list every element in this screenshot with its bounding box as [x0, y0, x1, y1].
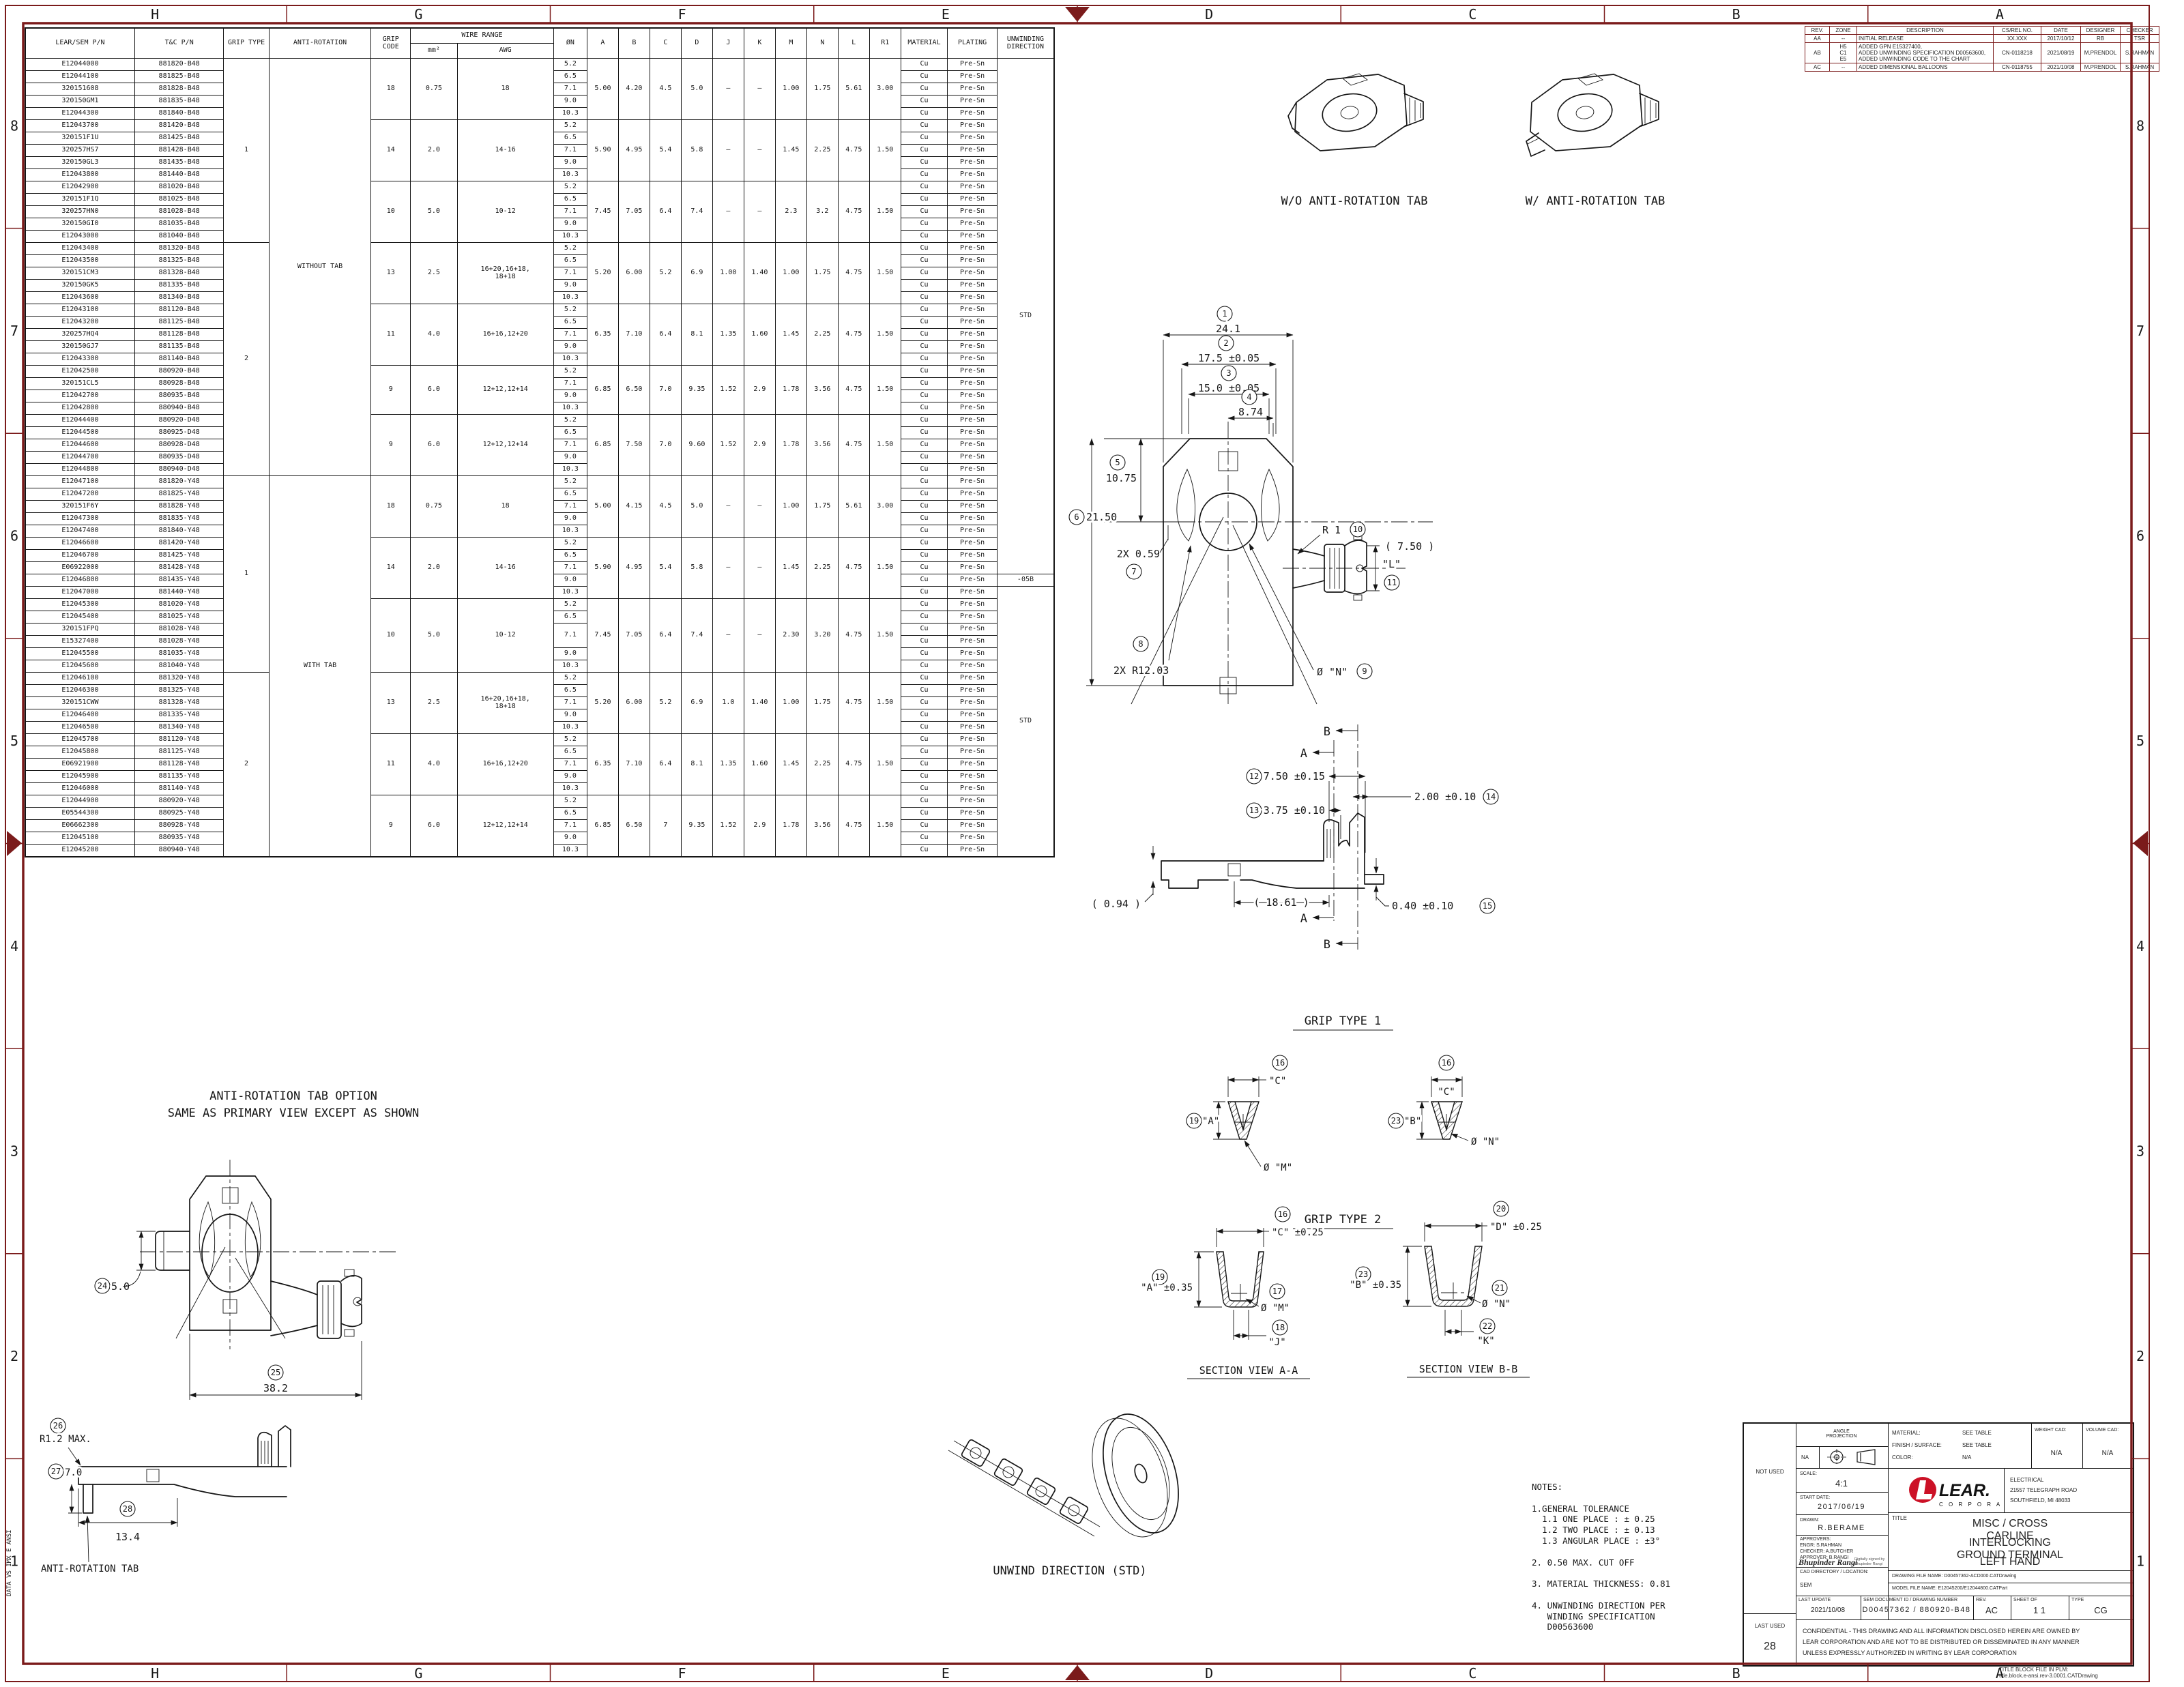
table-cell: 881320-Y48 [134, 673, 223, 685]
table-cell: 4.75 [838, 181, 869, 243]
table-cell: Pre-Sn [948, 599, 998, 611]
rev-cell: CN-0118218 [1994, 43, 2041, 63]
grip2-dim-a: "A" ±0.35 [1141, 1282, 1193, 1293]
table-cell: 881040-B48 [134, 231, 223, 243]
rev-cell: -- [1830, 35, 1857, 43]
table-cell: E12046000 [25, 783, 134, 795]
table-cell: Pre-Sn [948, 611, 998, 624]
table-cell: 881325-Y48 [134, 685, 223, 697]
table-cell: 7.1 [553, 83, 587, 96]
table-cell: 6.5 [553, 808, 587, 820]
table-cell: Pre-Sn [948, 452, 998, 464]
table-cell: E12046700 [25, 550, 134, 562]
dim-8-74: 8.74 [1238, 406, 1263, 418]
table-cell: Cu [901, 660, 947, 673]
table-cell: E12042500 [25, 366, 134, 378]
table-cell: 320150GJ7 [25, 341, 134, 353]
table-cell: Pre-Sn [948, 795, 998, 808]
table-cell: 320150GI0 [25, 218, 134, 231]
table-cell: Cu [901, 562, 947, 574]
view-w-anti-rotation-tab: W/ ANTI-ROTATION TAB [1526, 74, 1665, 208]
table-cell: 2.30 [775, 599, 806, 673]
table-cell: Pre-Sn [948, 108, 998, 120]
table-cell: 4.75 [838, 599, 869, 673]
table-cell: 5.0 [681, 476, 712, 538]
table-cell: E06922000 [25, 562, 134, 574]
table-cell: 320257HN0 [25, 206, 134, 218]
table-cell: Pre-Sn [948, 464, 998, 476]
dim-l-value: ( 7.50 ) [1385, 540, 1434, 553]
col-header-awg: AWG [457, 44, 553, 59]
rev-col-header: DESCRIPTION [1857, 27, 1994, 35]
table-cell: 1.50 [869, 120, 901, 181]
table-cell: 6.9 [681, 243, 712, 304]
table-cell: Cu [901, 366, 947, 378]
table-cell: Cu [901, 771, 947, 783]
dim-l-label: "L" [1382, 558, 1401, 570]
anti-option-title1: ANTI-ROTATION TAB OPTION [209, 1089, 377, 1103]
grip-type-2-views: GRIP TYPE 2 16 "C" ±0.25 19 "A" ±0.35 17… [1141, 1201, 1542, 1379]
table-cell: 10.3 [553, 402, 587, 415]
table-cell: 1.75 [806, 476, 838, 538]
table-cell: 5.4 [650, 120, 681, 181]
table-cell: 9 [371, 366, 411, 415]
table-cell: E12045600 [25, 660, 134, 673]
table-cell: Cu [901, 157, 947, 169]
table-cell: Cu [901, 329, 947, 341]
table-cell: E12045700 [25, 734, 134, 746]
table-cell: E06662300 [25, 820, 134, 832]
table-cell: 881420-Y48 [134, 538, 223, 550]
table-cell: 9 [371, 415, 411, 476]
table-cell: 881120-B48 [134, 304, 223, 317]
table-cell: 7.1 [553, 697, 587, 709]
table-cell: 1.50 [869, 415, 901, 476]
grip1-dim-c2: "C" [1438, 1087, 1455, 1098]
grip1-dim-a: "A" [1202, 1116, 1219, 1127]
ref-0-94: ( 0.94 ) [1092, 898, 1141, 910]
table-cell: 5.2 [553, 181, 587, 194]
table-cell: Pre-Sn [948, 624, 998, 636]
table-cell: 9.0 [553, 390, 587, 402]
approvers-label: APPROVERS: [1800, 1537, 1831, 1542]
col-header-J: J [712, 28, 744, 59]
table-cell: Pre-Sn [948, 366, 998, 378]
table-cell: 12+12,12+14 [457, 366, 553, 415]
zone-label: E [942, 1665, 950, 1682]
table-cell: Cu [901, 820, 947, 832]
table-cell: 7.1 [553, 624, 587, 648]
table-cell: E12047400 [25, 525, 134, 538]
table-cell: 10-12 [457, 181, 553, 243]
table-cell: 881440-Y48 [134, 587, 223, 599]
table-cell: 881325-B48 [134, 255, 223, 267]
table-cell: Pre-Sn [948, 820, 998, 832]
balloon-16b: 16 [1442, 1058, 1451, 1068]
table-cell: Cu [901, 378, 947, 390]
table-cell: Cu [901, 832, 947, 845]
table-cell: Pre-Sn [948, 722, 998, 734]
table-cell: 9.0 [553, 280, 587, 292]
zone-label: H [151, 6, 159, 23]
table-cell: 5.0 [411, 599, 457, 673]
rev-cell: INITIAL RELEASE [1857, 35, 1994, 43]
table-cell: 881820-Y48 [134, 476, 223, 488]
table-cell: Cu [901, 734, 947, 746]
table-cell: 1.52 [712, 415, 744, 476]
table-cell: E12043400 [25, 243, 134, 255]
zone-label: 3 [10, 1143, 18, 1159]
table-cell: 7.1 [553, 759, 587, 771]
logo-sub: C O R P O R A T I O N [1939, 1501, 2000, 1508]
table-cell: 6.4 [650, 734, 681, 795]
table-cell: E12042800 [25, 402, 134, 415]
table-cell: 6.5 [553, 746, 587, 759]
third-angle-projection-icon [1824, 1448, 1884, 1466]
table-cell: Cu [901, 181, 947, 194]
table-cell: Pre-Sn [948, 120, 998, 132]
table-cell: Pre-Sn [948, 562, 998, 574]
table-cell: 1.0 [712, 673, 744, 734]
table-cell: Cu [901, 845, 947, 857]
grip1-dim-c: "C" [1269, 1076, 1286, 1087]
table-cell: 881035-Y48 [134, 648, 223, 660]
table-cell: Cu [901, 280, 947, 292]
balloon-23b: 23 [1358, 1270, 1368, 1279]
dim-21-50: 21.50 [1086, 511, 1117, 523]
table-cell: Pre-Sn [948, 697, 998, 709]
table-cell: 881820-B48 [134, 59, 223, 71]
table-cell: Cu [901, 194, 947, 206]
table-cell: E12046600 [25, 538, 134, 550]
rev-cell: -- [1830, 63, 1857, 72]
table-cell: Cu [901, 169, 947, 181]
plm-note: TITLE BLOCK FILE IN PLM: title.block.e-a… [1999, 1667, 2098, 1679]
rev-cell: AC [1805, 63, 1830, 72]
table-cell: 18 [457, 59, 553, 120]
ref-18-61: ( 18.61 ) [1253, 896, 1309, 909]
table-cell: 1.50 [869, 795, 901, 857]
table-cell: 1.35 [712, 304, 744, 366]
balloon-25: 25 [271, 1368, 280, 1377]
table-cell: Pre-Sn [948, 390, 998, 402]
table-cell: Pre-Sn [948, 243, 998, 255]
lear-logo: LEAR. C O R P O R A T I O N [1908, 1475, 2000, 1510]
type-label: TYPE [2071, 1598, 2084, 1602]
table-cell: – [712, 599, 744, 673]
table-cell: E12044400 [25, 415, 134, 427]
table-cell: Pre-Sn [948, 96, 998, 108]
grip2-dim-m: Ø "M" [1261, 1303, 1290, 1314]
revision-table: REV.ZONEDESCRIPTIONCS/REL NO.DATEDESIGNE… [1805, 26, 2159, 72]
table-cell: Cu [901, 795, 947, 808]
table-cell: 1.00 [775, 476, 806, 538]
table-cell: – [712, 476, 744, 538]
table-cell: Pre-Sn [948, 550, 998, 562]
table-cell: 7.1 [553, 329, 587, 341]
table-cell: 320151FPQ [25, 624, 134, 636]
table-cell: E12043700 [25, 120, 134, 132]
col-header-B: B [618, 28, 650, 59]
angle-na: NA [1801, 1454, 1809, 1461]
table-cell: – [744, 476, 775, 538]
table-cell: 5.2 [553, 538, 587, 550]
doc-number-label: SEM DOCUMENT ID / DRAWING NUMBER [1863, 1598, 1957, 1602]
table-cell: 12+12,12+14 [457, 795, 553, 857]
table-cell: 881340-Y48 [134, 722, 223, 734]
zone-label: G [414, 6, 422, 23]
table-cell: 5.2 [553, 366, 587, 378]
dim-dia-n: Ø "N" [1317, 666, 1348, 678]
dim-13-4: 13.4 [115, 1531, 140, 1543]
zone-label: E [942, 6, 950, 23]
table-cell: 6.5 [553, 685, 587, 697]
table-cell: 881435-Y48 [134, 574, 223, 587]
table-cell: E12046300 [25, 685, 134, 697]
table-cell: 5.2 [553, 415, 587, 427]
title-line3: LEFT HAND [1980, 1556, 2041, 1568]
table-cell: 7.50 [618, 415, 650, 476]
table-cell: Cu [901, 341, 947, 353]
col-header-pn: LEAR/SEM P/N [25, 28, 134, 59]
table-cell: 5.2 [553, 599, 587, 611]
table-cell: 1.00 [775, 673, 806, 734]
table-cell: 3.56 [806, 415, 838, 476]
table-cell: Pre-Sn [948, 476, 998, 488]
zone-label: D [1205, 1665, 1213, 1682]
table-cell: Pre-Sn [948, 746, 998, 759]
table-cell: 6.5 [553, 611, 587, 624]
table-cell: 881128-B48 [134, 329, 223, 341]
approver-engr: ENGR: S.RAHMAN [1800, 1543, 1841, 1548]
table-cell: 1.45 [775, 304, 806, 366]
zone-label: C [1468, 1665, 1476, 1682]
table-cell: 1.75 [806, 243, 838, 304]
grip2-dim-n: Ø "N" [1482, 1299, 1511, 1310]
rev-cell: AA [1805, 35, 1830, 43]
parts-table-body: E12044000881820-B481WITHOUT TAB180.75185… [25, 59, 1054, 857]
table-row: E12046600881420-Y48142.014-165.25.904.95… [25, 538, 1054, 550]
table-cell: 881435-B48 [134, 157, 223, 169]
zone-label: H [151, 1665, 159, 1682]
table-cell: Pre-Sn [948, 808, 998, 820]
signature-note: Digitally signed by Bhupinder Rangi [1854, 1557, 1884, 1566]
table-cell: 10.3 [553, 231, 587, 243]
grip2-dim-k: "K" [1477, 1336, 1494, 1347]
table-cell: E06921900 [25, 759, 134, 771]
table-cell: 11 [371, 734, 411, 795]
not-used-label: NOT USED [1756, 1469, 1783, 1475]
dim-5-0: 5.0 [111, 1280, 130, 1293]
table-cell: WITH TAB [269, 476, 371, 857]
table-cell: WITHOUT TAB [269, 59, 371, 476]
zone-label: 4 [10, 938, 18, 954]
balloon-12: 12 [1249, 772, 1259, 781]
table-cell: 4.75 [838, 673, 869, 734]
table-cell: 10.3 [553, 783, 587, 795]
table-cell: Cu [901, 476, 947, 488]
table-cell: Cu [901, 231, 947, 243]
parts-table: LEAR/SEM P/N T&C P/N GRIP TYPE ANTI-ROTA… [25, 27, 1055, 857]
table-cell: 6.85 [587, 795, 618, 857]
dim-overall-width: 24.1 [1216, 323, 1240, 335]
section-view-aa: SECTION VIEW A-A [1199, 1364, 1298, 1377]
table-cell: Pre-Sn [948, 218, 998, 231]
table-cell: 4.95 [618, 120, 650, 181]
table-cell: Cu [901, 636, 947, 648]
grip-type-2-title: GRIP TYPE 2 [1305, 1213, 1382, 1227]
col-header-A: A [587, 28, 618, 59]
table-cell: 3.20 [806, 599, 838, 673]
table-cell: 881828-B48 [134, 83, 223, 96]
dim-0-40: 0.40 ±0.10 [1392, 900, 1453, 912]
table-cell: 1.35 [712, 734, 744, 795]
rev-cell: RB [2081, 35, 2121, 43]
start-date-value: 2017/06/19 [1818, 1503, 1865, 1511]
table-cell: E12044300 [25, 108, 134, 120]
table-row: E12042900881020-B48105.010-125.27.457.05… [25, 181, 1054, 194]
table-cell: 881025-Y48 [134, 611, 223, 624]
table-cell: 881428-B48 [134, 145, 223, 157]
table-cell: 881420-B48 [134, 120, 223, 132]
table-cell: 320151608 [25, 83, 134, 96]
table-cell: 5.00 [587, 476, 618, 538]
table-cell: Pre-Sn [948, 169, 998, 181]
table-cell: Pre-Sn [948, 267, 998, 280]
table-cell: Pre-Sn [948, 734, 998, 746]
table-cell: 10 [371, 599, 411, 673]
col-header-grip: GRIP TYPE [224, 28, 269, 59]
table-cell: Pre-Sn [948, 329, 998, 341]
table-cell: E05544300 [25, 808, 134, 820]
table-cell: 881825-Y48 [134, 488, 223, 501]
table-cell: 7.1 [553, 501, 587, 513]
table-cell: Cu [901, 501, 947, 513]
table-cell: 4.75 [838, 366, 869, 415]
zone-label: 6 [2136, 528, 2144, 544]
balloon-14: 14 [1486, 792, 1496, 802]
dim-r1-2: R1.2 MAX. [40, 1434, 91, 1445]
table-cell: 2.9 [744, 795, 775, 857]
view-wo-anti-rotation-tab: W/O ANTI-ROTATION TAB [1281, 74, 1428, 208]
zone-label: 3 [2136, 1143, 2144, 1159]
table-cell: 5.2 [553, 59, 587, 71]
table-cell: 881020-Y48 [134, 599, 223, 611]
table-cell: 5.0 [411, 181, 457, 243]
table-cell: Cu [901, 697, 947, 709]
zone-label: A [1996, 6, 2004, 23]
sheet-label: SHEET OF [2013, 1598, 2037, 1602]
table-cell: Pre-Sn [948, 206, 998, 218]
table-cell: Cu [901, 292, 947, 304]
drawn-label: DRAWN: [1800, 1518, 1819, 1523]
table-cell: 881440-B48 [134, 169, 223, 181]
table-cell: 881020-B48 [134, 181, 223, 194]
table-cell: Cu [901, 599, 947, 611]
notes-block: NOTES: 1.GENERAL TOLERANCE 1.1 ONE PLACE… [1532, 1482, 1670, 1632]
table-cell: E12047200 [25, 488, 134, 501]
table-cell: E12045200 [25, 845, 134, 857]
balloon-16c: 16 [1278, 1209, 1287, 1219]
division: ELECTRICAL [2010, 1477, 2043, 1483]
rev-col-header: REV. [1805, 27, 1830, 35]
table-row: E12043700881420-B48142.014-165.25.904.95… [25, 120, 1054, 132]
table-cell: 2.25 [806, 120, 838, 181]
table-cell: 9.0 [553, 96, 587, 108]
last-update-label: LAST UPDATE [1799, 1598, 1831, 1602]
table-cell: Cu [901, 402, 947, 415]
table-cell: 5.8 [681, 538, 712, 599]
table-cell: Cu [901, 206, 947, 218]
right-center-marker [2133, 831, 2148, 856]
table-cell: 9.60 [681, 415, 712, 476]
table-cell: – [712, 538, 744, 599]
table-cell: 7.10 [618, 304, 650, 366]
zone-label: 7 [10, 323, 18, 339]
color-value: N/A [1962, 1454, 1971, 1461]
table-cell: 7.4 [681, 599, 712, 673]
col-header-L: L [838, 28, 869, 59]
table-cell: 0.75 [411, 59, 457, 120]
table-cell: E12044500 [25, 427, 134, 439]
table-cell: 9.0 [553, 513, 587, 525]
table-cell: Cu [901, 218, 947, 231]
table-cell: 1.45 [775, 734, 806, 795]
table-cell: 880935-Y48 [134, 832, 223, 845]
table-cell: 1.50 [869, 366, 901, 415]
table-cell: 4.5 [650, 476, 681, 538]
table-cell: 3.56 [806, 366, 838, 415]
table-cell: 6.85 [587, 415, 618, 476]
table-cell: Cu [901, 427, 947, 439]
rev-col-header: ZONE [1830, 27, 1857, 35]
table-cell: E12046500 [25, 722, 134, 734]
table-cell: 881835-Y48 [134, 513, 223, 525]
table-cell: 4.75 [838, 795, 869, 857]
table-cell: Pre-Sn [948, 378, 998, 390]
anti-option-title2: SAME AS PRIMARY VIEW EXCEPT AS SHOWN [168, 1106, 419, 1120]
table-cell: 5.20 [587, 243, 618, 304]
table-cell: 5.2 [553, 795, 587, 808]
table-cell: 1.00 [775, 59, 806, 120]
view-label-wo-tab: W/O ANTI-ROTATION TAB [1281, 194, 1428, 208]
table-cell: 2.9 [744, 415, 775, 476]
weight-cad-value: N/A [2051, 1450, 2063, 1457]
table-cell: Pre-Sn [948, 845, 998, 857]
col-header-on: ØN [553, 28, 587, 59]
table-cell: E12045100 [25, 832, 134, 845]
table-cell: 6.0 [411, 415, 457, 476]
table-cell: 6.00 [618, 673, 650, 734]
table-cell: 6.9 [681, 673, 712, 734]
grip2-dim-j: "J" [1268, 1337, 1285, 1348]
table-cell: 6.85 [587, 366, 618, 415]
table-cell: 881425-B48 [134, 132, 223, 145]
title-label: TITLE [1892, 1515, 1907, 1521]
last-used-value: 28 [1764, 1641, 1776, 1653]
table-cell: 5.2 [553, 304, 587, 317]
table-cell: 9.0 [553, 341, 587, 353]
table-cell: E12046100 [25, 673, 134, 685]
table-cell: 16+16,12+20 [457, 734, 553, 795]
finish-label: FINISH / SURFACE: [1892, 1442, 1942, 1448]
table-cell: 7.0 [650, 366, 681, 415]
table-cell: 8.1 [681, 734, 712, 795]
dim-2x-0-59: 2X 0.59 [1117, 548, 1160, 560]
table-cell: 5.61 [838, 476, 869, 538]
last-update-value: 2021/10/08 [1811, 1607, 1845, 1614]
table-cell: E12043800 [25, 169, 134, 181]
